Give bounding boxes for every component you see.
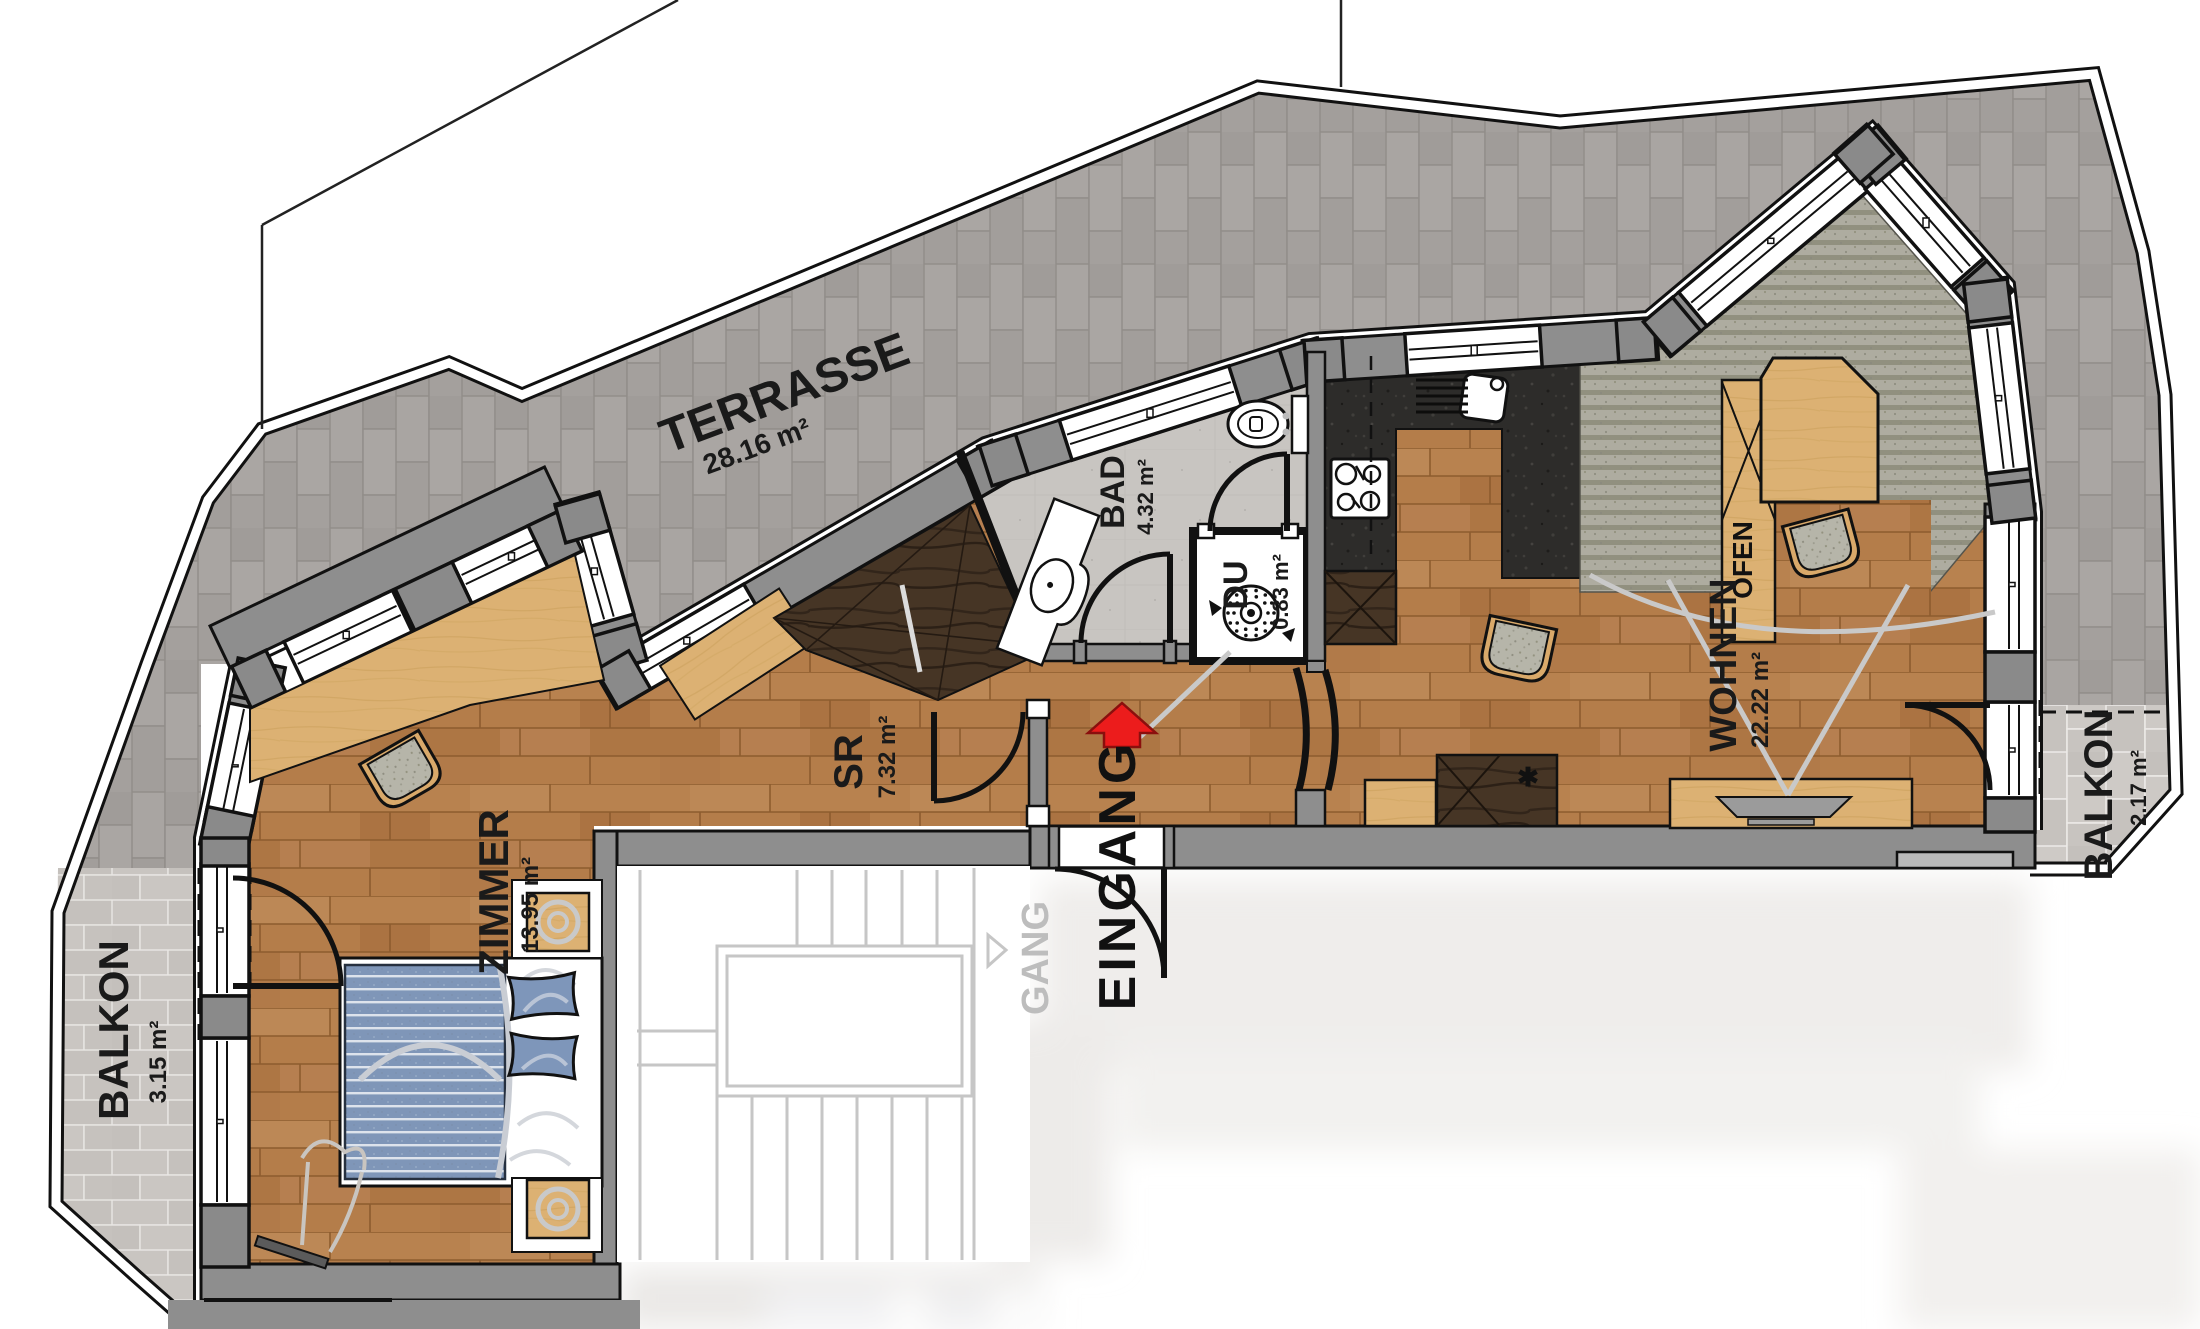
svg-text:22.22 m²: 22.22 m² — [1747, 652, 1774, 748]
svg-text:WOHNEN: WOHNEN — [1703, 578, 1745, 751]
svg-text:ZIMMER: ZIMMER — [470, 809, 517, 975]
svg-text:4.32 m²: 4.32 m² — [1133, 459, 1158, 535]
svg-text:7.32 m²: 7.32 m² — [874, 716, 901, 799]
svg-text:SR: SR — [827, 734, 871, 790]
svg-text:BALKON: BALKON — [90, 940, 137, 1120]
svg-text:0.83 m²: 0.83 m² — [1268, 554, 1293, 630]
svg-text:✱: ✱ — [1517, 762, 1539, 792]
svg-text:13.95 m²: 13.95 m² — [517, 857, 544, 953]
svg-text:DU: DU — [1217, 560, 1255, 609]
svg-text:BAD: BAD — [1094, 455, 1132, 529]
svg-text:EINGANG: EINGANG — [1089, 740, 1147, 1011]
svg-text:BALKON: BALKON — [2077, 709, 2121, 880]
svg-text:2.17 m²: 2.17 m² — [2126, 750, 2151, 826]
svg-text:3.15 m²: 3.15 m² — [145, 1021, 172, 1104]
svg-text:GANG: GANG — [1015, 901, 1057, 1015]
